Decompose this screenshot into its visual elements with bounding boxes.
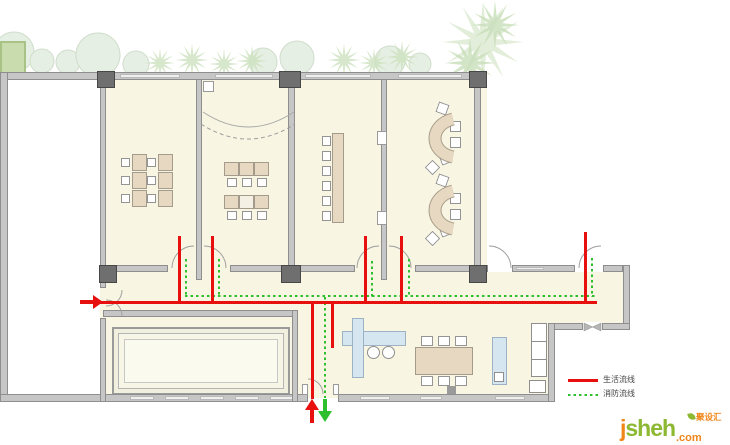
leaf-icon [687,412,696,421]
entry-arrow-tail [80,300,93,304]
fire-route-branch [218,259,220,297]
life-route-branch [364,236,367,303]
life-route-branch [584,232,587,303]
legend-life-route-sample [568,379,598,382]
door-swing [172,246,194,268]
exit-arrow-up-tail [310,410,314,423]
life-route-branch [178,236,181,303]
exit-arrow-down-icon [318,411,332,422]
legend-life-route-label: 生活流线 [603,376,635,384]
curtain-arc-solid [203,112,294,127]
life-route-stub [331,302,334,348]
site-logo: jsheh .com 聚设汇 [620,411,730,445]
fire-route-exit [324,297,326,398]
legend-fire-route-sample [568,394,598,396]
life-route-branch [400,236,403,303]
fire-route-main [185,295,595,297]
arc-desk-cluster [435,191,453,229]
curtain-arc-dashed [201,124,295,139]
exit-arrow-up-icon [305,399,319,410]
legend-fire-route-label: 消防流线 [603,390,635,398]
life-route-branch [211,236,214,303]
logo-wordmark: jsheh [620,415,675,442]
exit-arrow-down-tail [323,399,327,411]
door-swing [579,246,601,268]
logo-sheh: sheh [625,415,675,441]
life-route-exit [311,302,314,399]
logo-cn-label: 聚设汇 [696,411,722,423]
fire-route-branch [185,259,187,297]
door-swing [204,246,226,268]
door-swing [357,246,379,268]
fire-route-branch [408,259,410,297]
arc-desk-cluster [435,119,453,157]
life-route-main [100,301,597,304]
fire-route-branch [591,258,593,297]
door-swing [489,246,511,268]
logo-com: .com [676,432,702,444]
fire-route-branch [371,261,373,297]
entry-arrow-right-icon [93,295,103,309]
floor-plan-canvas: 生活流线 消防流线 jsheh .com 聚设汇 [0,0,730,445]
